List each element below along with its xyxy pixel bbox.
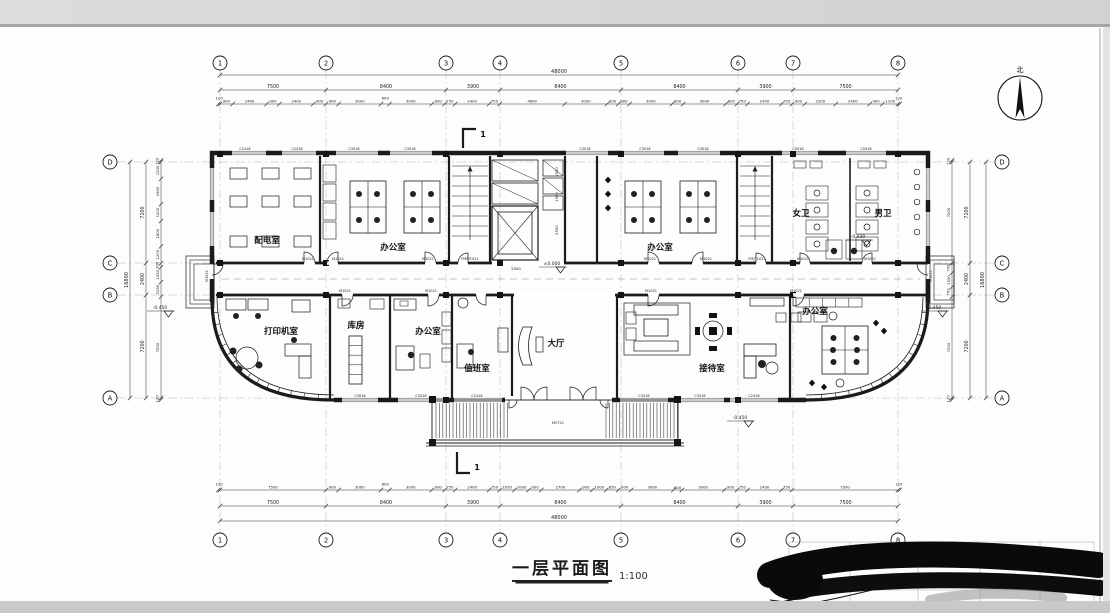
grid-bubble-label: B [1000, 291, 1005, 299]
window-label: C3018 [415, 394, 426, 398]
grid-bubble-label: 4 [498, 59, 502, 67]
dim-total: 16800 [980, 272, 986, 288]
dim-value: 120 [895, 482, 903, 487]
dim-value: 120 [154, 395, 159, 403]
room-label: 办公室 [802, 306, 828, 317]
dim-value: 120 [216, 482, 224, 487]
dim-span: 2400 [964, 273, 970, 285]
furniture [222, 161, 920, 390]
grid-bubble-label: A [1000, 394, 1005, 402]
elevation-value: -0.450 [927, 305, 942, 311]
door-label: M1021 [929, 270, 933, 282]
grid-bubble-label: 6 [736, 59, 740, 67]
dim-value: 600 [382, 96, 390, 101]
dim-span: 3900 [759, 500, 771, 506]
dim-span: 8400 [673, 84, 685, 90]
dim-value: 800 [620, 98, 628, 103]
dim-value: 2400 [467, 98, 477, 103]
dim-value: 750 [739, 484, 747, 489]
floor-plan-drawing: 4800075008400390084008400390075001209002… [0, 0, 1110, 613]
dim-value: 1500 [554, 192, 559, 202]
section-marks: 11 [457, 129, 486, 473]
dim-value: 900 [727, 484, 735, 489]
dim-total: 48000 [551, 69, 567, 75]
dim-value: 750 [491, 484, 499, 489]
dim-value: 2500 [554, 225, 559, 235]
window-label: C2418 [291, 147, 302, 151]
dim-value: 900 [435, 484, 443, 489]
room-label: 男卫 [874, 209, 892, 219]
dim-span: 8400 [673, 500, 685, 506]
dim-value: 750 [446, 484, 454, 489]
grid-bubble-label: 2 [324, 59, 328, 67]
grid-bubble-label: 3 [444, 59, 448, 67]
dim-value: 900 [223, 98, 231, 103]
dim-span: 3900 [467, 500, 479, 506]
grid-bubble-label: D [999, 158, 1004, 166]
dim-value: 1000 [517, 484, 527, 489]
dim-value: 800 [728, 98, 736, 103]
dim-span: 8400 [380, 500, 392, 506]
room-label: 接待室 [699, 363, 725, 374]
dim-span: 7500 [267, 500, 279, 506]
dim-value: 900 [795, 98, 803, 103]
section-mark-label: 1 [480, 130, 486, 139]
doors [209, 252, 931, 408]
dim-value: 7500 [840, 484, 850, 489]
dim-value: 1200 [155, 207, 160, 217]
north-arrow: 北 [998, 66, 1042, 120]
dim-value: 7200 [946, 342, 951, 352]
dim-value: 700 [945, 288, 950, 296]
door-label: M1021 [645, 289, 657, 293]
dim-span: 3900 [759, 84, 771, 90]
dim-span: 7200 [964, 340, 970, 352]
grid-bubble-label: D [107, 158, 112, 166]
grid-bubble-label: 4 [498, 536, 502, 544]
grid-bubble-label: 7 [791, 59, 795, 67]
door-label: M1021 [422, 257, 434, 261]
window-label: C3018 [694, 394, 705, 398]
room-label: 大厅 [547, 338, 565, 349]
dim-value: 750 [783, 484, 791, 489]
dim-span: 7200 [140, 340, 146, 352]
grid-bubbles: 1122334455667788DDCCBBAA [103, 56, 1009, 547]
dim-value: 700 [945, 264, 950, 272]
dim-value: 1050 [502, 484, 512, 489]
drawing-scale: 1:100 [619, 571, 648, 582]
entrance-porch [186, 256, 954, 446]
window-label: C2418 [471, 394, 482, 398]
room-label: 值班室 [464, 363, 490, 374]
dim-value: 120 [154, 157, 159, 165]
door-label: M1021 [797, 257, 809, 261]
dim-value: 2400 [245, 98, 255, 103]
room-label: 库房 [347, 320, 364, 331]
dim-value: 3000 [355, 484, 365, 489]
dim-value: 1100 [885, 98, 895, 103]
dim-span: 7500 [839, 84, 851, 90]
window-label: C3018 [639, 147, 650, 151]
opening-labels: C2418C2418C3018C3018C3018C3018C3018C0918… [205, 147, 933, 425]
dim-value: 1800 [155, 228, 160, 238]
room-label: 配电室 [254, 235, 280, 246]
title-block [789, 28, 1100, 612]
windows [209, 150, 930, 402]
dim-value: 3000 [406, 484, 416, 489]
dim-value: 1200 [155, 249, 160, 259]
dim-value: 2200 [815, 98, 825, 103]
dim-value: 1050 [155, 269, 160, 279]
dim-value: 1050 [155, 284, 160, 294]
dim-value: 3000 [581, 98, 591, 103]
dim-value: 2400 [760, 98, 770, 103]
dim-value: 750 [739, 98, 747, 103]
elevation-value: -0.030 [851, 234, 866, 240]
door-label: M1021 [302, 257, 314, 261]
dim-value: 2500 [511, 266, 521, 271]
drawing-title-block: 一层平面图1:100 [512, 554, 648, 582]
grid-bubble-label: B [108, 291, 113, 299]
dim-value: 900 [872, 98, 880, 103]
dim-value: 900 [269, 98, 277, 103]
dim-value: 1500 [554, 167, 559, 177]
grid-bubble-label: 1 [218, 59, 222, 67]
room-label: 办公室 [647, 242, 673, 253]
dim-value: 120 [945, 157, 950, 165]
grid-bubble-label: 5 [619, 59, 623, 67]
dim-value: 900 [435, 98, 443, 103]
dim-value: 3000 [700, 98, 710, 103]
dim-value: 120 [945, 395, 950, 403]
dim-value: 750 [446, 98, 454, 103]
stairs-elevator [452, 160, 770, 260]
dim-span: 8400 [380, 84, 392, 90]
elevation-value: -0.450 [153, 305, 168, 311]
grid-bubble-label: 3 [444, 536, 448, 544]
dim-value: 900 [582, 484, 590, 489]
dim-span: 2400 [140, 273, 146, 285]
door-label: M1021 [339, 289, 351, 293]
door-label: M1021 [644, 257, 656, 261]
dim-value: 3000 [646, 98, 656, 103]
room-label: 办公室 [415, 326, 441, 337]
elevation-value: -0.450 [733, 415, 748, 421]
dim-span: 8400 [554, 84, 566, 90]
dim-value: 600 [674, 485, 682, 490]
dim-span: 8400 [554, 500, 566, 506]
door-label: M1021 [864, 257, 876, 261]
dim-value: 4600 [527, 98, 537, 103]
room-label: 女卫 [792, 208, 810, 219]
dim-total: 16800 [124, 272, 130, 288]
window-label: C0918 [860, 147, 871, 151]
dim-value: 120 [895, 96, 903, 101]
dim-value: 800 [609, 98, 617, 103]
dim-value: 7200 [155, 342, 160, 352]
dim-value: 900 [531, 484, 539, 489]
door-label: M1021 [700, 257, 712, 261]
grid-bubble-label: 7 [791, 536, 795, 544]
room-label: 打印机室 [264, 326, 299, 337]
room-label: 办公室 [380, 242, 406, 253]
dim-total: 48000 [551, 515, 567, 521]
grid-bubble-label: 5 [619, 536, 623, 544]
grid-bubble-label: 1 [218, 536, 222, 544]
viewer-top-bar [0, 0, 1110, 24]
dim-value: 7500 [268, 484, 278, 489]
grid-centerlines [117, 70, 995, 533]
window-label: C2418 [748, 394, 759, 398]
sheet-right-edge [1103, 27, 1110, 601]
grid-bubble-label: A [108, 394, 113, 402]
dim-value: 300 [154, 261, 159, 269]
window-label: C3018 [348, 147, 359, 151]
door-label: M2721 [552, 421, 564, 425]
grid-bubble-label: 2 [324, 536, 328, 544]
dim-span: 7500 [839, 500, 851, 506]
dim-span: 7200 [964, 206, 970, 218]
sheet-top-edge [0, 24, 1110, 27]
dim-value: 3000 [406, 98, 416, 103]
dim-value: 1000 [594, 484, 604, 489]
north-label: 北 [1017, 66, 1024, 74]
door-label: M1021 [425, 289, 437, 293]
dim-value: 900 [329, 484, 337, 489]
dim-value: 900 [621, 484, 629, 489]
dim-value: 3000 [355, 98, 365, 103]
dim-span: 3900 [467, 84, 479, 90]
window-label: C3018 [354, 394, 365, 398]
dim-value: 1000 [946, 275, 951, 285]
dim-value: 800 [674, 98, 682, 103]
dim-value: 900 [329, 98, 337, 103]
grid-bubble-label: 8 [896, 59, 900, 67]
dim-value: 2400 [467, 484, 477, 489]
dim-value: 2700 [556, 484, 566, 489]
dim-value: 3000 [647, 484, 657, 489]
door-label: M1021 [205, 270, 209, 282]
window-label: C0918 [792, 147, 803, 151]
window-label: C3018 [638, 394, 649, 398]
dim-value: 7200 [946, 207, 951, 217]
dim-value: 600 [382, 482, 390, 487]
door-label: FM乙1021 [748, 256, 765, 261]
dim-value: 850 [609, 484, 617, 489]
dim-span: 7200 [140, 206, 146, 218]
grid-bubble-label: C [1000, 259, 1005, 267]
dim-value: 750 [491, 98, 499, 103]
door-label: FM甲1021 [461, 257, 478, 261]
dim-span: 7500 [267, 84, 279, 90]
dim-value: 2400 [291, 98, 301, 103]
dim-value: 2400 [760, 484, 770, 489]
dim-value: 3000 [698, 484, 708, 489]
viewer-bottom-bar [0, 601, 1110, 613]
grid-bubble-label: C [108, 259, 113, 267]
dim-value: 750 [783, 98, 791, 103]
window-label: C3018 [697, 147, 708, 151]
dim-value: 900 [316, 98, 324, 103]
elevation-value: ±0.000 [544, 261, 561, 267]
drawing-title: 一层平面图 [512, 554, 612, 582]
window-label: C2418 [239, 147, 250, 151]
door-label: M1021 [332, 257, 344, 261]
section-mark-label: 1 [474, 463, 480, 472]
window-label: C3018 [579, 147, 590, 151]
photo-viewer-canvas: 4800075008400390084008400390075001209002… [0, 0, 1110, 613]
grid-bubble-label: 6 [736, 536, 740, 544]
window-label: C3018 [404, 147, 415, 151]
dim-value: 2400 [848, 98, 858, 103]
dim-value: 1800 [155, 186, 160, 196]
door-label: M1021 [790, 289, 802, 293]
dim-value: 1200 [155, 165, 160, 175]
